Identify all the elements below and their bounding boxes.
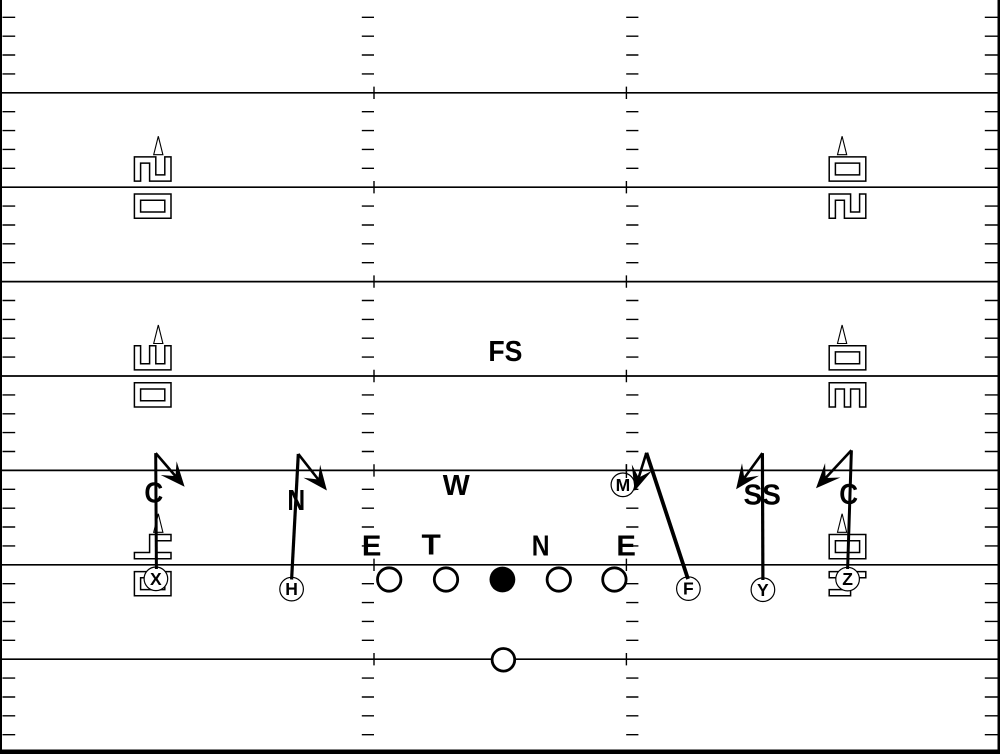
svg-text:Y: Y xyxy=(757,580,769,600)
svg-text:C: C xyxy=(144,477,163,509)
svg-text:M: M xyxy=(616,475,631,495)
svg-text:F: F xyxy=(683,579,694,599)
svg-text:Z: Z xyxy=(842,569,853,589)
svg-text:E: E xyxy=(616,531,636,563)
svg-text:X: X xyxy=(150,569,162,589)
svg-text:H: H xyxy=(285,579,298,599)
svg-text:W: W xyxy=(443,470,470,502)
svg-text:N: N xyxy=(532,531,550,563)
svg-text:E: E xyxy=(362,531,382,563)
svg-text:T: T xyxy=(422,530,442,562)
svg-text:FS: FS xyxy=(488,336,522,368)
